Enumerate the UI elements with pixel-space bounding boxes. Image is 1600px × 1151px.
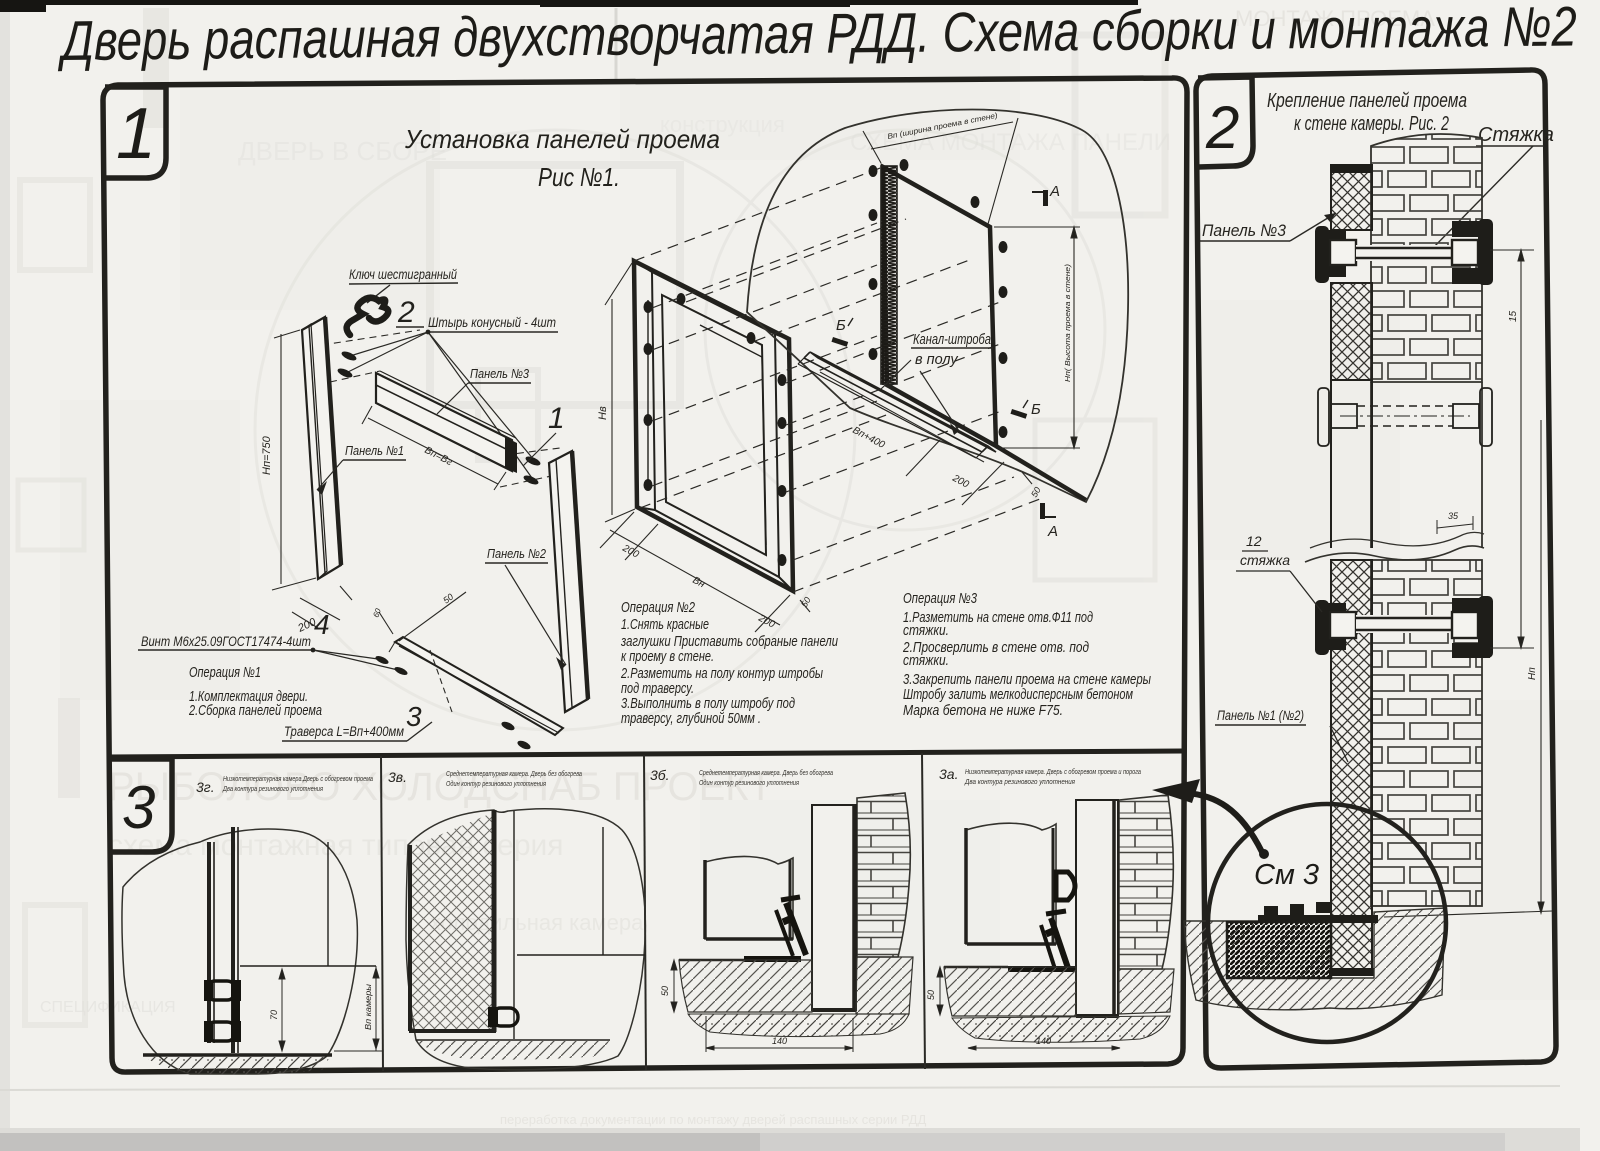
svg-text:Установка панелей проема: Установка панелей проема xyxy=(404,124,720,154)
svg-text:в полу: в полу xyxy=(915,352,958,368)
svg-text:3: 3 xyxy=(122,774,155,841)
svg-text:Низкотемпературная камера. Две: Низкотемпературная камера. Дверь с обогр… xyxy=(965,768,1141,776)
svg-text:А: А xyxy=(1049,183,1060,200)
svg-text:Траверса L=Вп+400мм: Траверса L=Вп+400мм xyxy=(284,724,404,739)
svg-text:Вп камеры: Вп камеры xyxy=(364,984,373,1030)
svg-text:Операция №3: Операция №3 xyxy=(903,591,977,607)
svg-text:1: 1 xyxy=(548,402,565,435)
svg-text:1: 1 xyxy=(116,94,156,174)
svg-text:3б.: 3б. xyxy=(650,767,670,783)
svg-text:Нп=750: Нп=750 xyxy=(261,435,273,475)
svg-text:СПЕЦИФИКАЦИЯ: СПЕЦИФИКАЦИЯ xyxy=(40,999,176,1016)
svg-text:под траверсу.: под траверсу. xyxy=(621,681,694,697)
svg-text:Штробу залить мелкодисперсным: Штробу залить мелкодисперсным бетоном xyxy=(903,687,1133,703)
svg-text:Среднетемпературная камера. Дв: Среднетемпературная камера. Дверь без об… xyxy=(699,769,833,777)
svg-text:Нв: Нв xyxy=(597,406,609,420)
svg-text:50: 50 xyxy=(660,986,670,996)
svg-text:Винт М6х25.09ГОСТ17474-4шт: Винт М6х25.09ГОСТ17474-4шт xyxy=(141,633,311,649)
svg-text:стяжки.: стяжки. xyxy=(903,653,949,669)
svg-text:2: 2 xyxy=(397,296,415,329)
svg-text:3а.: 3а. xyxy=(939,766,958,782)
svg-text:стяжки.: стяжки. xyxy=(903,623,949,639)
svg-text:к стене камеры. Рис. 2: к стене камеры. Рис. 2 xyxy=(1294,113,1449,135)
svg-text:Нп( Высота проема в стене): Нп( Высота проема в стене) xyxy=(1063,263,1072,382)
svg-text:А: А xyxy=(1047,523,1058,540)
svg-text:переработка документации по мо: переработка документации по монтажу двер… xyxy=(500,1112,926,1127)
svg-text:Панель №3: Панель №3 xyxy=(1202,221,1286,240)
svg-text:Два контура резинового уплотне: Два контура резинового уплотнения xyxy=(964,779,1075,786)
svg-text:Два контура резинового уплотне: Два контура резинового уплотнения xyxy=(222,786,323,793)
svg-text:70: 70 xyxy=(269,1010,279,1020)
svg-text:3.Закрепить панели проема на с: 3.Закрепить панели проема на стене камер… xyxy=(903,672,1151,688)
svg-text:Нп: Нп xyxy=(1527,667,1538,680)
svg-text:35: 35 xyxy=(1448,511,1459,521)
svg-text:3: 3 xyxy=(406,701,422,732)
svg-text:140: 140 xyxy=(772,1036,787,1046)
svg-text:Марка бетона не ниже F75.: Марка бетона не ниже F75. xyxy=(903,703,1063,719)
svg-text:Среднетемпературная камера. Дв: Среднетемпературная камера. Дверь без об… xyxy=(446,770,582,778)
svg-text:Б: Б xyxy=(836,317,846,334)
svg-text:траверсу, глубиной 50мм .: траверсу, глубиной 50мм . xyxy=(621,711,761,727)
svg-text:2: 2 xyxy=(1205,94,1239,161)
svg-text:Панель №1 (№2): Панель №1 (№2) xyxy=(1217,708,1304,723)
svg-text:Рис №1.: Рис №1. xyxy=(538,162,620,192)
svg-text:Низкотемпературная камера.Двер: Низкотемпературная камера.Дверь с обогре… xyxy=(223,775,373,783)
svg-text:к проему в стене.: к проему в стене. xyxy=(621,649,714,665)
svg-text:Один контур резинового уплотне: Один контур резинового уплотнения xyxy=(446,780,546,788)
svg-text:140: 140 xyxy=(1036,1036,1051,1046)
svg-text:12: 12 xyxy=(1246,533,1262,549)
svg-text:Стяжка: Стяжка xyxy=(1478,124,1554,146)
svg-text:Канал-штроба: Канал-штроба xyxy=(913,332,991,348)
svg-text:Один контур резинового уплотне: Один контур резинового уплотнения xyxy=(699,779,799,787)
svg-text:3.Выполнить в полу штробу под: 3.Выполнить в полу штробу под xyxy=(621,696,795,712)
svg-text:Панель №3: Панель №3 xyxy=(470,366,530,381)
svg-text:4: 4 xyxy=(314,609,330,640)
svg-text:Б: Б xyxy=(1031,401,1041,418)
svg-text:Панель №2: Панель №2 xyxy=(487,546,547,561)
svg-text:Панель №1: Панель №1 xyxy=(345,443,404,458)
svg-text:2.Разметить на полу контур штр: 2.Разметить на полу контур штробы xyxy=(620,666,823,682)
svg-text:заглушки Приставить собраные: заглушки Приставить собраные панели xyxy=(620,634,838,650)
svg-text:3г.: 3г. xyxy=(196,779,215,795)
svg-text:3в.: 3в. xyxy=(388,769,407,785)
svg-text:Крепление панелей проема: Крепление панелей проема xyxy=(1267,90,1467,112)
svg-text:стяжка: стяжка xyxy=(1240,552,1290,568)
svg-text:См 3: См 3 xyxy=(1254,859,1319,891)
svg-text:Операция №1: Операция №1 xyxy=(189,665,261,681)
svg-text:Штырь конусный - 4шт: Штырь конусный - 4шт xyxy=(428,315,556,330)
svg-text:2.Сборка панелей проема: 2.Сборка панелей проема xyxy=(188,703,322,719)
svg-text:15: 15 xyxy=(1508,310,1519,322)
svg-text:Операция №2: Операция №2 xyxy=(621,600,695,616)
svg-text:1.Снять красные: 1.Снять красные xyxy=(621,617,709,633)
svg-text:50: 50 xyxy=(926,990,936,1000)
svg-text:Ключ шестигранный: Ключ шестигранный xyxy=(349,267,457,282)
